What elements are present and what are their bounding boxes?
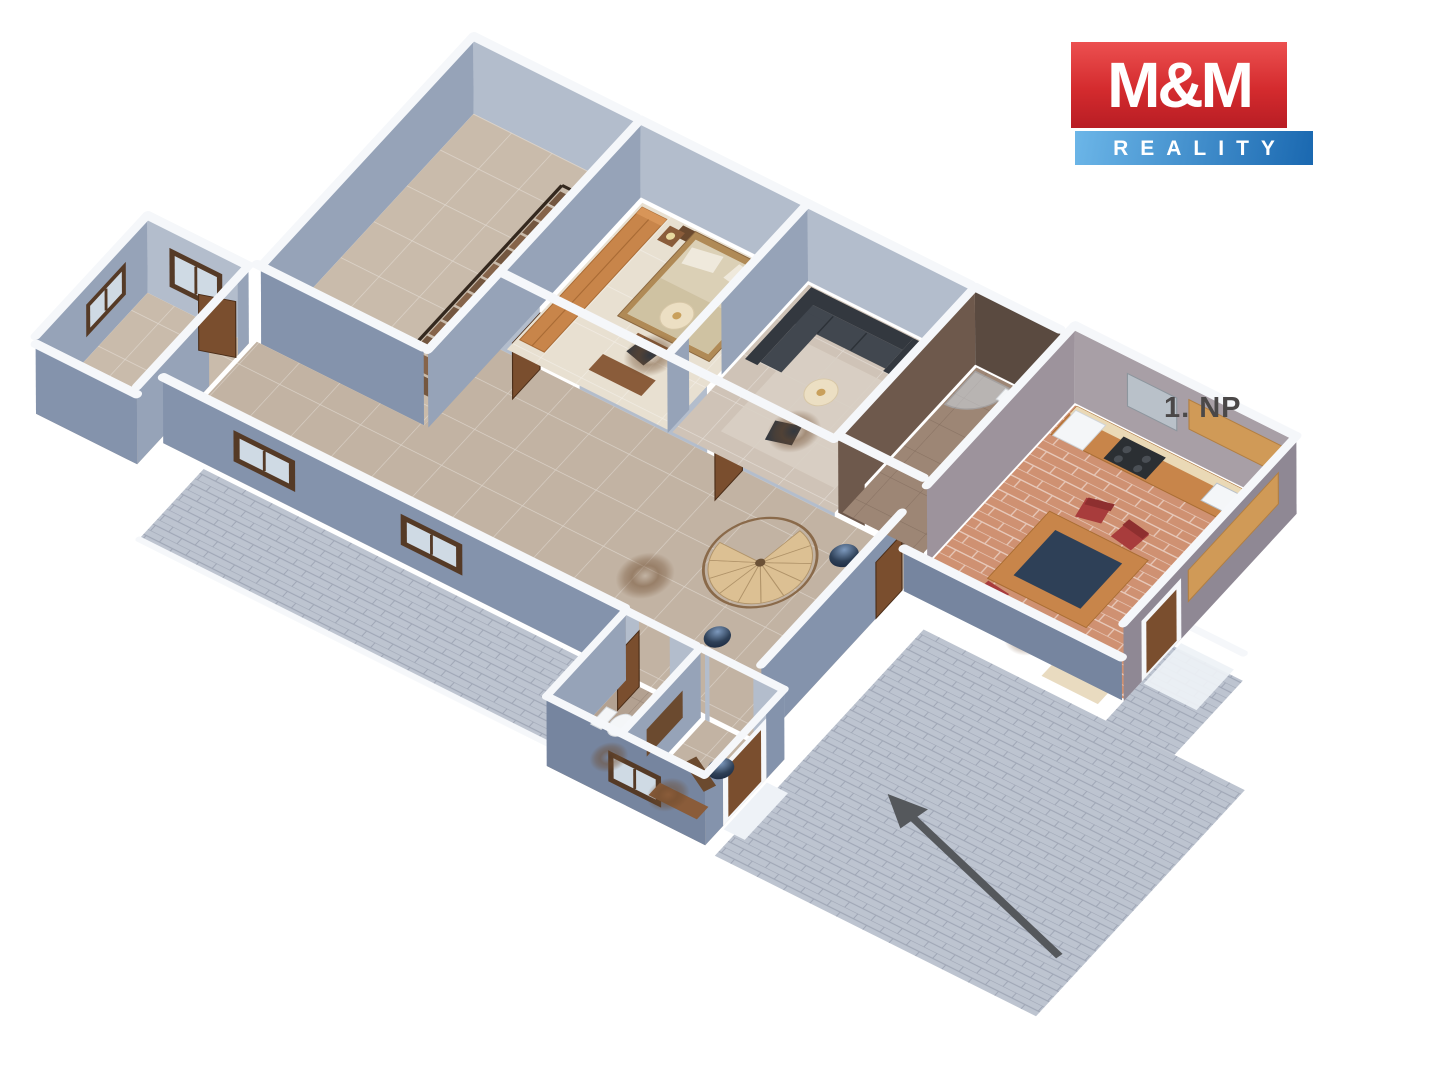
logo-red-block: M&M <box>1071 42 1287 128</box>
floor-level-label: 1. NP <box>1164 392 1242 425</box>
logo-bottom-text: REALITY <box>1101 138 1287 159</box>
logo-blue-bar: REALITY <box>1075 131 1313 165</box>
screenshot-root: M&M REALITY 1. NP <box>0 0 1440 1080</box>
logo-top-text: M&M <box>1107 53 1251 117</box>
mm-reality-logo: M&M REALITY <box>1071 42 1315 165</box>
